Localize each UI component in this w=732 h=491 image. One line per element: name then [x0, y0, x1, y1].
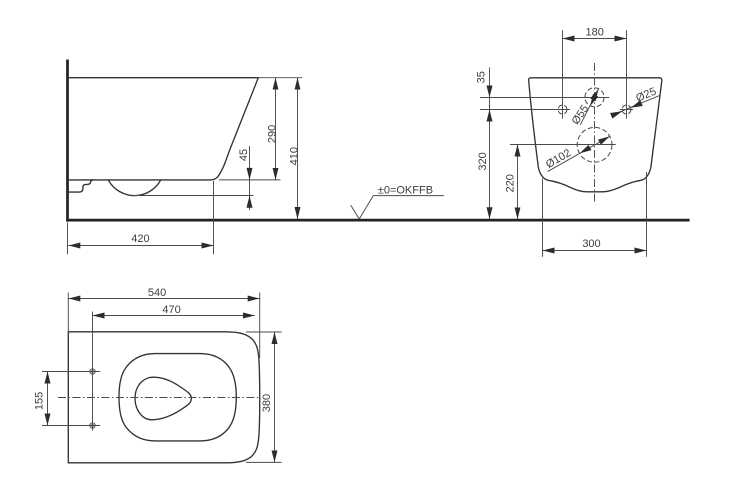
svg-text:35: 35	[476, 71, 488, 83]
svg-text:Ø55: Ø55	[570, 103, 592, 127]
svg-text:410: 410	[288, 147, 300, 165]
svg-text:380: 380	[261, 394, 273, 412]
svg-text:45: 45	[238, 149, 250, 161]
svg-text:Ø102: Ø102	[544, 147, 573, 171]
svg-text:155: 155	[34, 392, 46, 410]
svg-text:±0=OKFFB: ±0=OKFFB	[378, 185, 433, 197]
svg-text:Ø25: Ø25	[634, 86, 658, 105]
svg-text:420: 420	[131, 233, 149, 245]
svg-text:290: 290	[267, 125, 279, 143]
svg-text:180: 180	[586, 27, 604, 39]
svg-text:300: 300	[582, 238, 600, 250]
svg-text:320: 320	[477, 152, 489, 170]
svg-text:470: 470	[162, 304, 180, 316]
svg-text:220: 220	[505, 174, 517, 192]
svg-text:540: 540	[148, 287, 166, 299]
